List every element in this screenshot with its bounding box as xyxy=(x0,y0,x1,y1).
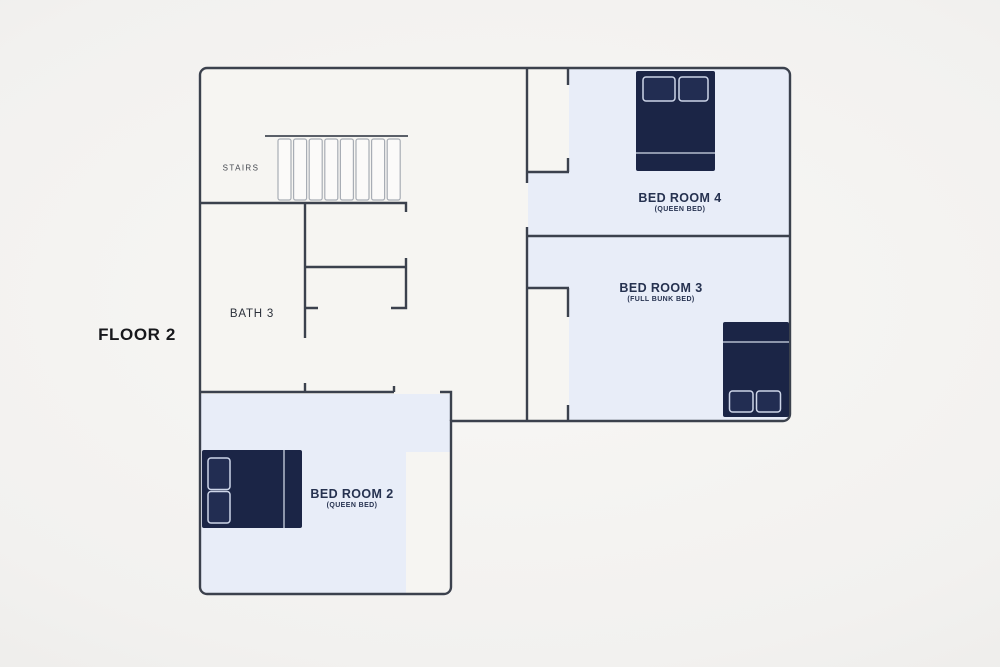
bedroom2-bed-type: (QUEEN BED) xyxy=(327,502,378,509)
stair-tread xyxy=(325,139,338,200)
bedroom3-name: BED ROOM 3 xyxy=(619,281,702,295)
bedroom2-name: BED ROOM 2 xyxy=(310,487,393,501)
bedroom4-label: BED ROOM 4 (QUEEN BED) xyxy=(638,191,721,213)
floor-plan: FLOOR 2 STAIRS BATH 3 BED ROOM 2 (QUEEN … xyxy=(0,0,1000,667)
stairs-label: STAIRS xyxy=(223,164,260,173)
pillow-icon xyxy=(757,391,781,412)
stair-tread xyxy=(340,139,353,200)
bed-icon-bedroom2 xyxy=(202,450,302,528)
stair-tread xyxy=(278,139,291,200)
bath3-label: BATH 3 xyxy=(230,308,274,320)
pillow-icon xyxy=(208,458,230,490)
bedroom4-name: BED ROOM 4 xyxy=(638,191,721,205)
bedroom2-label: BED ROOM 2 (QUEEN BED) xyxy=(310,487,393,509)
floor-title: FLOOR 2 xyxy=(98,325,176,345)
pillow-icon xyxy=(679,77,708,101)
stair-tread xyxy=(309,139,322,200)
stair-tread xyxy=(356,139,369,200)
bedroom3-bed-type: (FULL BUNK BED) xyxy=(627,296,694,303)
pillow-icon xyxy=(208,492,230,524)
stair-tread xyxy=(372,139,385,200)
pillow-icon xyxy=(730,391,754,412)
bed-icon-bedroom4 xyxy=(636,71,715,171)
pillow-icon xyxy=(643,77,675,101)
bed-icon-bedroom3 xyxy=(723,322,789,417)
stair-tread xyxy=(387,139,400,200)
stair-tread xyxy=(294,139,307,200)
bedroom4-bed-type: (QUEEN BED) xyxy=(655,206,706,213)
bedroom3-label: BED ROOM 3 (FULL BUNK BED) xyxy=(619,281,702,303)
